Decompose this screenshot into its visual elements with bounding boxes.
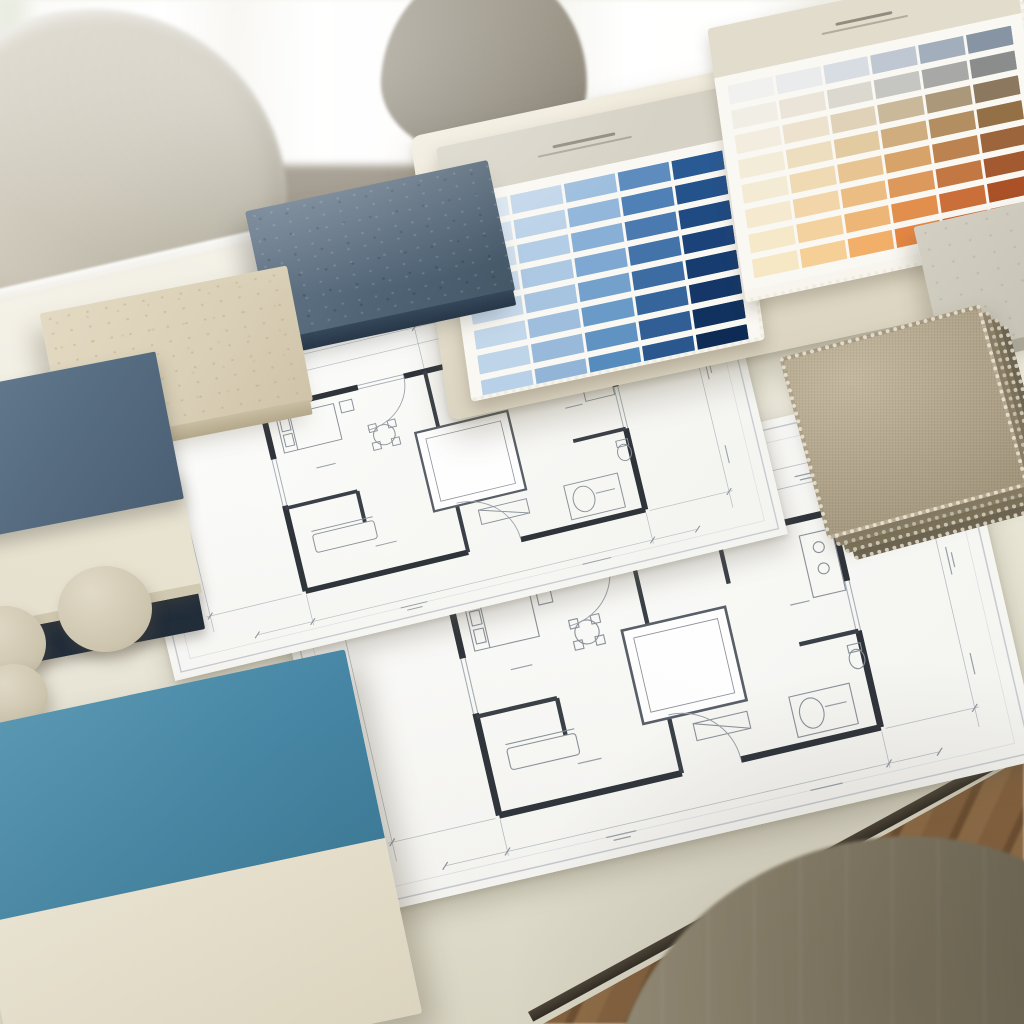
- swatch-cell: [621, 187, 675, 217]
- swatch-cell: [970, 50, 1017, 78]
- swatch-cell: [918, 36, 965, 64]
- swatch-cell: [727, 76, 774, 104]
- swatch-cell: [786, 141, 833, 169]
- swatch-cell: [847, 230, 894, 258]
- swatch-cell: [939, 185, 986, 213]
- swatch-cell: [984, 150, 1024, 178]
- swatch-cell: [564, 173, 618, 203]
- swatch-cell: [793, 190, 840, 218]
- swatch-cell: [741, 176, 788, 204]
- swatch-cell: [775, 66, 822, 94]
- swatch-cell: [878, 95, 925, 123]
- swatch-cell: [888, 170, 935, 198]
- swatch-cell: [826, 81, 873, 109]
- swatch-cell: [833, 130, 880, 158]
- swatch-cell: [524, 284, 578, 314]
- swatch-cell: [731, 101, 778, 129]
- swatch-cell: [734, 126, 781, 154]
- swatch-cell: [779, 91, 826, 119]
- stone-disc: [58, 566, 152, 652]
- swatch-cell: [936, 160, 983, 188]
- swatch-cell: [987, 174, 1024, 202]
- swatch-cell: [510, 185, 564, 215]
- swatch-cell: [844, 205, 891, 233]
- swatch-cell: [977, 100, 1024, 128]
- swatch-cell: [567, 198, 621, 228]
- swatch-cell: [632, 261, 686, 291]
- swatch-cell: [635, 286, 689, 316]
- swatch-cell: [585, 322, 639, 352]
- swatch-cell: [830, 106, 877, 134]
- swatch-cell: [800, 240, 847, 268]
- swatch-cell: [571, 223, 625, 253]
- swatch-cell: [823, 56, 870, 84]
- swatch-cell: [881, 120, 928, 148]
- swatch-cell: [840, 180, 887, 208]
- swatch-cell: [837, 155, 884, 183]
- swatch-cell: [689, 274, 743, 304]
- swatch-cell: [796, 215, 843, 243]
- swatch-cell: [738, 151, 785, 179]
- swatch-cell: [517, 234, 571, 264]
- swatch-cell: [966, 26, 1013, 54]
- swatch-cell: [871, 46, 918, 74]
- swatch-cell: [474, 320, 528, 350]
- swatch-cell: [581, 297, 635, 327]
- swatch-cell: [578, 272, 632, 302]
- swatch-cell: [929, 110, 976, 138]
- swatch-cell: [745, 200, 792, 228]
- swatch-cell: [678, 200, 732, 230]
- swatch-cell: [531, 334, 585, 364]
- design-table-photo: Flat-lay photo of a design studio table:…: [0, 0, 1024, 1024]
- swatch-cell: [925, 85, 972, 113]
- swatch-cell: [782, 116, 829, 144]
- swatch-cell: [748, 225, 795, 253]
- swatch-cell: [574, 248, 628, 278]
- swatch-cell: [892, 195, 939, 223]
- swatch-cell: [692, 299, 746, 329]
- swatch-cell: [922, 61, 969, 89]
- swatch-cell: [675, 175, 729, 205]
- swatch-cell: [527, 309, 581, 339]
- swatch-cell: [625, 211, 679, 241]
- swatch-cell: [874, 71, 921, 99]
- swatch-cell: [639, 311, 693, 341]
- swatch-cell: [980, 125, 1024, 153]
- swatch-cell: [752, 250, 799, 278]
- swatch-cell: [628, 236, 682, 266]
- swatch-cell: [520, 259, 574, 289]
- swatch-cell: [789, 165, 836, 193]
- swatch-cell: [973, 75, 1020, 103]
- swatch-cell: [682, 225, 736, 255]
- swatch-cell: [685, 250, 739, 280]
- swatch-cell: [618, 162, 672, 192]
- swatch-cell: [885, 145, 932, 173]
- swatch-cell: [477, 345, 531, 375]
- swatch-cell: [514, 209, 568, 239]
- swatch-cell: [932, 135, 979, 163]
- swatch-cell: [671, 150, 725, 180]
